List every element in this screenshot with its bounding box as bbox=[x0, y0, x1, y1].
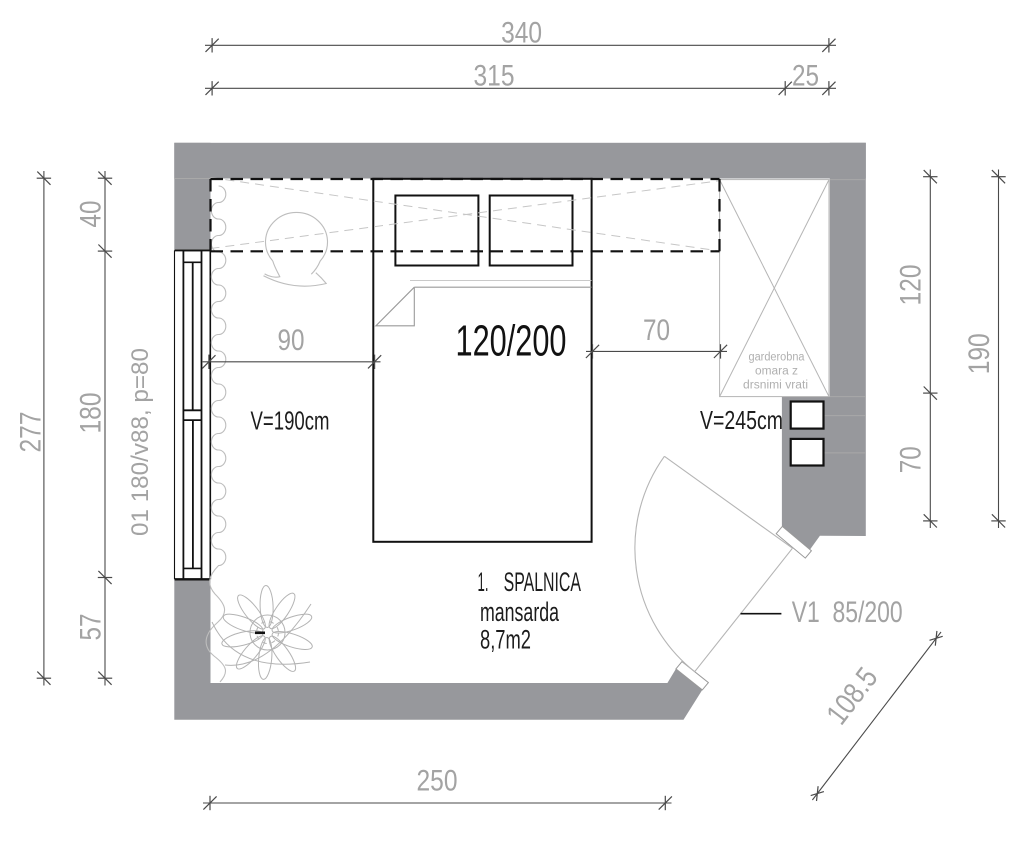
svg-text:1.: 1. bbox=[478, 567, 489, 597]
svg-text:garderobna: garderobna bbox=[749, 352, 806, 364]
svg-text:190: 190 bbox=[963, 333, 996, 374]
svg-text:mansarda: mansarda bbox=[480, 597, 560, 627]
svg-text:40: 40 bbox=[75, 201, 108, 228]
svg-text:SPALNICA: SPALNICA bbox=[504, 567, 581, 597]
svg-text:180: 180 bbox=[75, 393, 108, 434]
svg-text:277: 277 bbox=[15, 412, 48, 453]
svg-text:omara z: omara z bbox=[755, 366, 798, 378]
svg-text:V=190cm: V=190cm bbox=[251, 406, 330, 436]
svg-text:120/200: 120/200 bbox=[456, 317, 567, 366]
svg-text:01 180/v88, p=80: 01 180/v88, p=80 bbox=[127, 348, 154, 536]
svg-text:57: 57 bbox=[75, 614, 108, 641]
svg-text:120: 120 bbox=[895, 265, 928, 306]
svg-text:V1 85/200: V1 85/200 bbox=[792, 596, 903, 629]
svg-text:8,7m2: 8,7m2 bbox=[480, 625, 531, 655]
svg-text:70: 70 bbox=[895, 446, 928, 473]
svg-text:315: 315 bbox=[474, 60, 515, 93]
svg-text:70: 70 bbox=[643, 314, 670, 347]
svg-text:340: 340 bbox=[501, 17, 542, 50]
svg-text:drsnimi vrati: drsnimi vrati bbox=[743, 380, 808, 392]
svg-text:V=245cm: V=245cm bbox=[700, 405, 783, 435]
svg-text:250: 250 bbox=[417, 765, 458, 798]
svg-text:90: 90 bbox=[278, 324, 305, 357]
svg-text:25: 25 bbox=[792, 60, 819, 93]
